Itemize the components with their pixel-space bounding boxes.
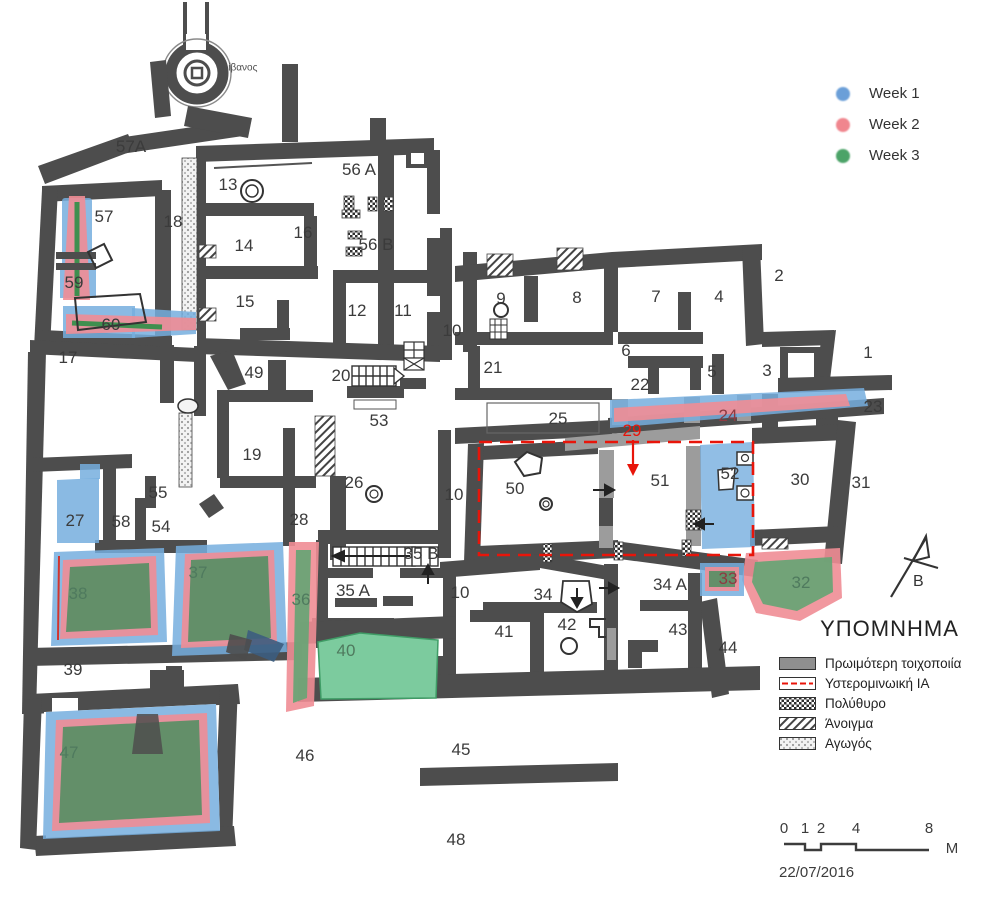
scale-tick-4: 4 (852, 820, 860, 837)
map-key: ΥΠΟΜΝΗΜΑ Πρωιμότερη τοιχοποιία Υστερομιν… (779, 616, 1000, 756)
date-label: 22/07/2016 (779, 864, 854, 881)
opening-swatch-icon (779, 717, 816, 730)
early-masonry-swatch-icon (779, 657, 816, 670)
week3-label: Week 3 (869, 147, 920, 164)
week1-dot-icon (836, 87, 850, 101)
lm-ia-swatch-icon (779, 677, 816, 690)
week3-dot-icon (836, 149, 850, 163)
key-row-polythyron: Πολύθυρο (779, 696, 1000, 711)
site-plan-page: Β 0 1 2 4 8 M 22/07/2016 57A131656 A56 B… (0, 0, 1000, 899)
scale-tick-2: 2 (817, 820, 825, 837)
week-legend: Week 1 Week 2 Week 3 (836, 78, 920, 171)
scale-tick-8: 8 (925, 820, 933, 837)
scale-unit: M (946, 840, 959, 857)
key-row-conduit: Αγωγός (779, 736, 1000, 751)
north-arrow: Β (891, 536, 938, 597)
polythyron-swatch-icon (779, 697, 816, 710)
map-key-title: ΥΠΟΜΝΗΜΑ (779, 616, 1000, 642)
week1-row: Week 1 (836, 78, 920, 109)
key-row-opening: Άνοιγμα (779, 716, 1000, 731)
key-label-polythyron: Πολύθυρο (825, 696, 886, 711)
week3-row: Week 3 (836, 140, 920, 171)
scale-tick-1: 1 (801, 820, 809, 837)
week2-dot-icon (836, 118, 850, 132)
week1-label: Week 1 (869, 85, 920, 102)
conduit-swatch-icon (779, 737, 816, 750)
key-row-early-masonry: Πρωιμότερη τοιχοποιία (779, 656, 1000, 671)
north-label: Β (913, 573, 924, 590)
key-label-early-masonry: Πρωιμότερη τοιχοποιία (825, 656, 961, 671)
key-label-opening: Άνοιγμα (825, 716, 873, 731)
key-label-lm-ia: Υστερομινωική ΙΑ (825, 676, 929, 691)
week2-label: Week 2 (869, 116, 920, 133)
key-row-lm-ia: Υστερομινωική ΙΑ (779, 676, 1000, 691)
scale-tick-0: 0 (780, 820, 788, 837)
scale-bar: 0 1 2 4 8 M 22/07/2016 (779, 820, 958, 881)
week2-row: Week 2 (836, 109, 920, 140)
key-label-conduit: Αγωγός (825, 736, 872, 751)
